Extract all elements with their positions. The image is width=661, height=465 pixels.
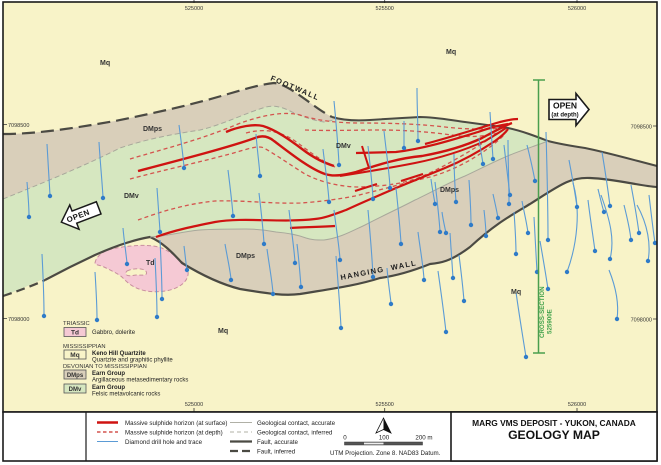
svg-text:CROSS-SECTION: CROSS-SECTION [539, 286, 546, 338]
svg-text:100: 100 [379, 435, 390, 442]
svg-text:GEOLOGY MAP: GEOLOGY MAP [508, 428, 600, 442]
svg-text:Quartzite and graphitic phylli: Quartzite and graphitic phyllite [92, 358, 173, 364]
svg-text:DEVONIAN TO MISSISSIPPIAN: DEVONIAN TO MISSISSIPPIAN [63, 364, 147, 370]
svg-text:UTM Projection. Zone 8. NAD83: UTM Projection. Zone 8. NAD83 Datum. [330, 450, 441, 457]
svg-text:7098000: 7098000 [631, 318, 652, 324]
svg-text:Keno Hill Quartzite: Keno Hill Quartzite [92, 351, 146, 357]
svg-text:525000: 525000 [185, 402, 203, 408]
svg-text:526000: 526000 [568, 6, 586, 12]
svg-text:7098500: 7098500 [631, 125, 652, 131]
svg-text:Mq: Mq [218, 328, 228, 335]
svg-text:Diamond drill hole and trace: Diamond drill hole and trace [125, 439, 203, 446]
svg-text:OPEN: OPEN [553, 101, 577, 111]
svg-text:Gabbro, dolerite: Gabbro, dolerite [92, 330, 136, 336]
svg-text:MARG VMS DEPOSIT - YUKON, CANA: MARG VMS DEPOSIT - YUKON, CANADA [472, 418, 636, 428]
svg-text:DMv: DMv [124, 193, 139, 200]
svg-text:Massive sulphide horizon (at d: Massive sulphide horizon (at depth) [125, 430, 223, 437]
svg-text:525500: 525500 [376, 402, 394, 408]
svg-text:Fault, accurate: Fault, accurate [257, 439, 298, 446]
svg-text:Geological contact, inferred: Geological contact, inferred [257, 430, 333, 437]
svg-text:Massive sulphide horizon (at s: Massive sulphide horizon (at surface) [125, 420, 227, 427]
svg-text:DMps: DMps [440, 187, 459, 194]
svg-text:DMps: DMps [67, 373, 84, 379]
svg-text:526000: 526000 [568, 402, 586, 408]
svg-text:200 m: 200 m [415, 435, 432, 442]
svg-text:525000: 525000 [185, 6, 203, 12]
svg-text:(at depth): (at depth) [551, 113, 578, 119]
svg-text:Td: Td [71, 330, 79, 337]
svg-text:DMps: DMps [143, 126, 162, 133]
svg-text:Earn Group: Earn Group [92, 385, 125, 391]
svg-text:Mq: Mq [446, 49, 456, 56]
svg-text:525500: 525500 [376, 6, 394, 12]
svg-text:Felsic metavolcanic rocks: Felsic metavolcanic rocks [92, 392, 160, 398]
svg-text:0: 0 [343, 435, 347, 442]
svg-text:Fault, inferred: Fault, inferred [257, 449, 296, 456]
svg-text:DMv: DMv [336, 143, 351, 150]
svg-text:Geological contact, accurate: Geological contact, accurate [257, 420, 336, 427]
svg-text:Mq: Mq [100, 60, 110, 67]
svg-text:Td: Td [146, 260, 155, 267]
svg-text:7098500: 7098500 [8, 123, 29, 129]
svg-text:Earn Group: Earn Group [92, 371, 125, 377]
svg-text:7098000: 7098000 [8, 317, 29, 323]
svg-text:525900E: 525900E [547, 309, 554, 334]
svg-text:MISSISSIPPIAN: MISSISSIPPIAN [63, 344, 106, 350]
svg-text:Argillaceous metasedimentary r: Argillaceous metasedimentary rocks [92, 378, 188, 384]
svg-text:DMv: DMv [69, 387, 82, 393]
svg-text:DMps: DMps [236, 253, 255, 260]
svg-text:Mq: Mq [70, 352, 79, 359]
svg-text:Mq: Mq [511, 289, 521, 296]
svg-text:TRIASSIC: TRIASSIC [63, 321, 90, 327]
